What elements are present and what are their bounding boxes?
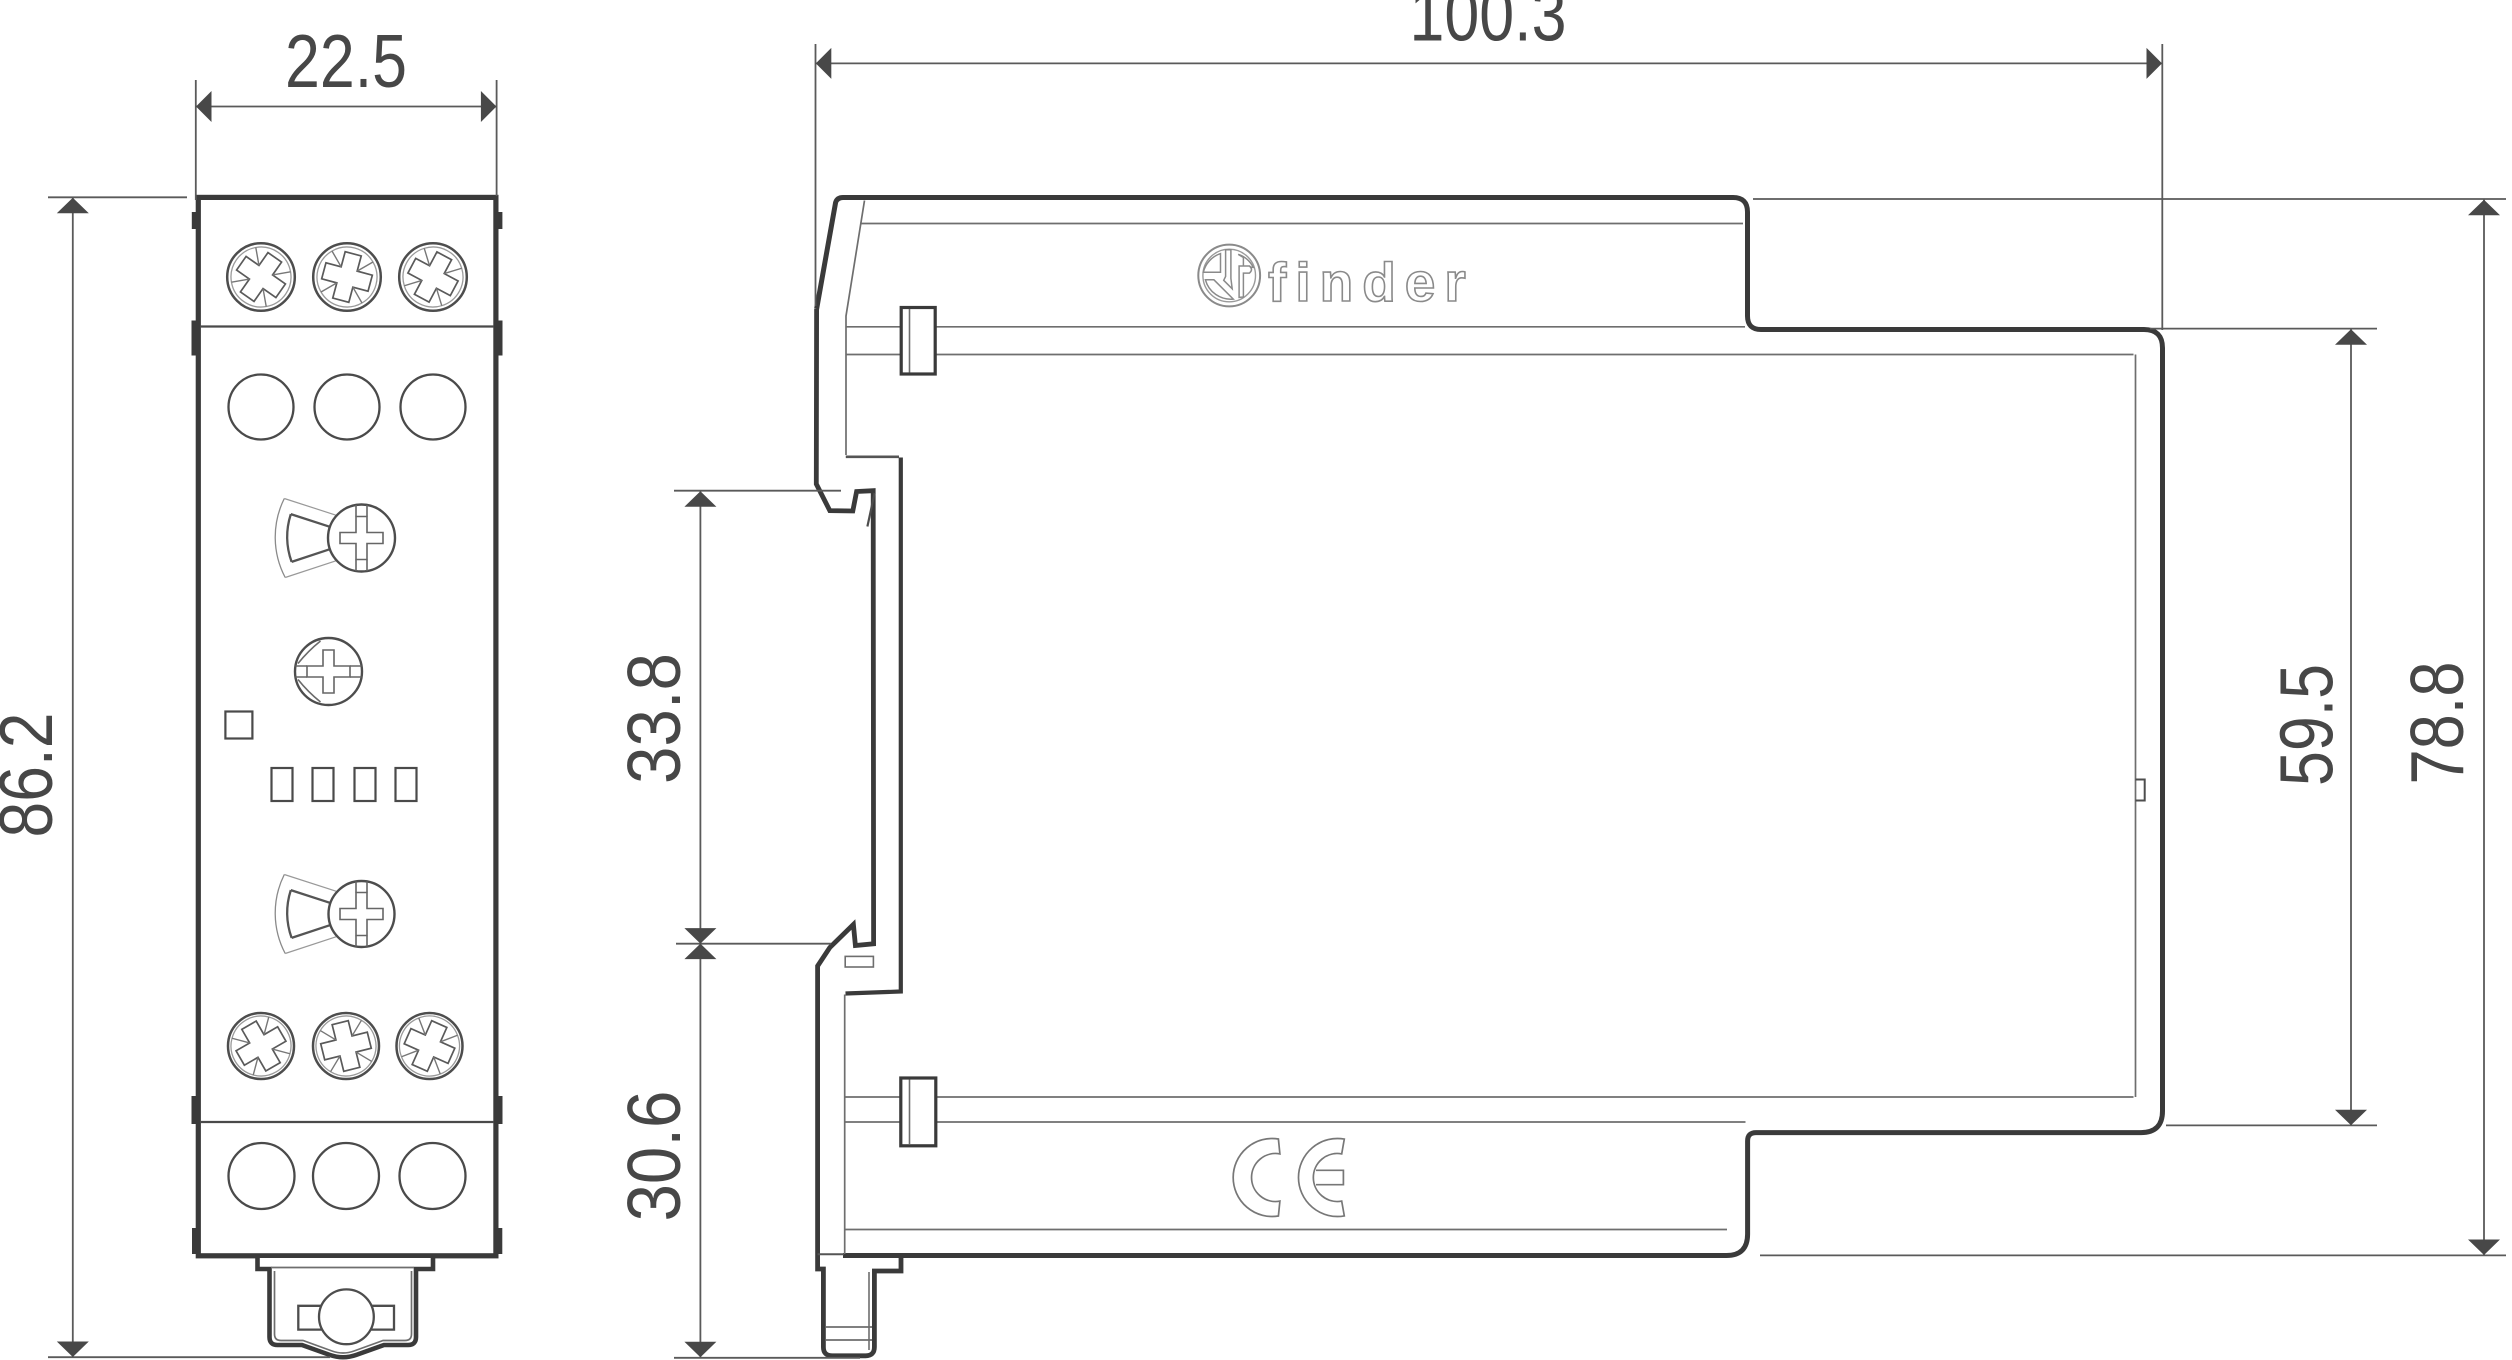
svg-text:33.8: 33.8 [612,653,696,784]
svg-text:59.5: 59.5 [2265,664,2349,786]
svg-text:30.6: 30.6 [612,1091,696,1222]
svg-text:78.8: 78.8 [2395,662,2479,785]
svg-text:100.3: 100.3 [1410,0,1567,57]
svg-text:22.5: 22.5 [285,19,407,103]
svg-text:finder: finder [1268,251,1475,313]
svg-text:86.2: 86.2 [0,713,68,838]
